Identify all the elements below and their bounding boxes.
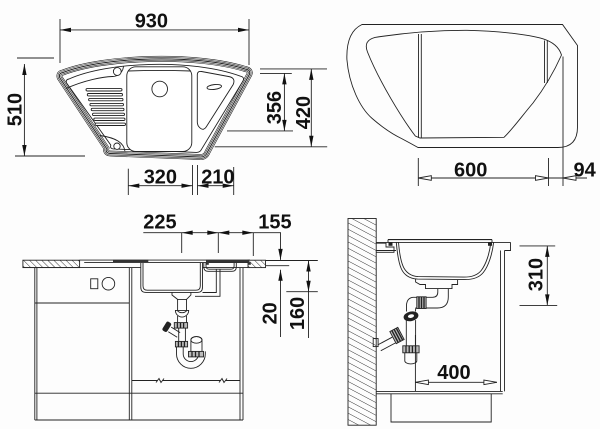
svg-text:160: 160 <box>287 297 309 330</box>
svg-text:600: 600 <box>454 160 487 182</box>
svg-text:420: 420 <box>293 96 315 129</box>
svg-text:155: 155 <box>258 211 291 233</box>
svg-text:210: 210 <box>201 167 234 189</box>
svg-text:400: 400 <box>437 362 470 384</box>
svg-text:510: 510 <box>5 93 27 126</box>
svg-text:930: 930 <box>135 11 168 33</box>
svg-text:20: 20 <box>260 302 282 324</box>
svg-text:356: 356 <box>264 91 286 124</box>
svg-text:94: 94 <box>574 160 597 182</box>
svg-text:310: 310 <box>526 258 548 291</box>
svg-text:320: 320 <box>144 167 177 189</box>
svg-text:225: 225 <box>143 211 176 233</box>
